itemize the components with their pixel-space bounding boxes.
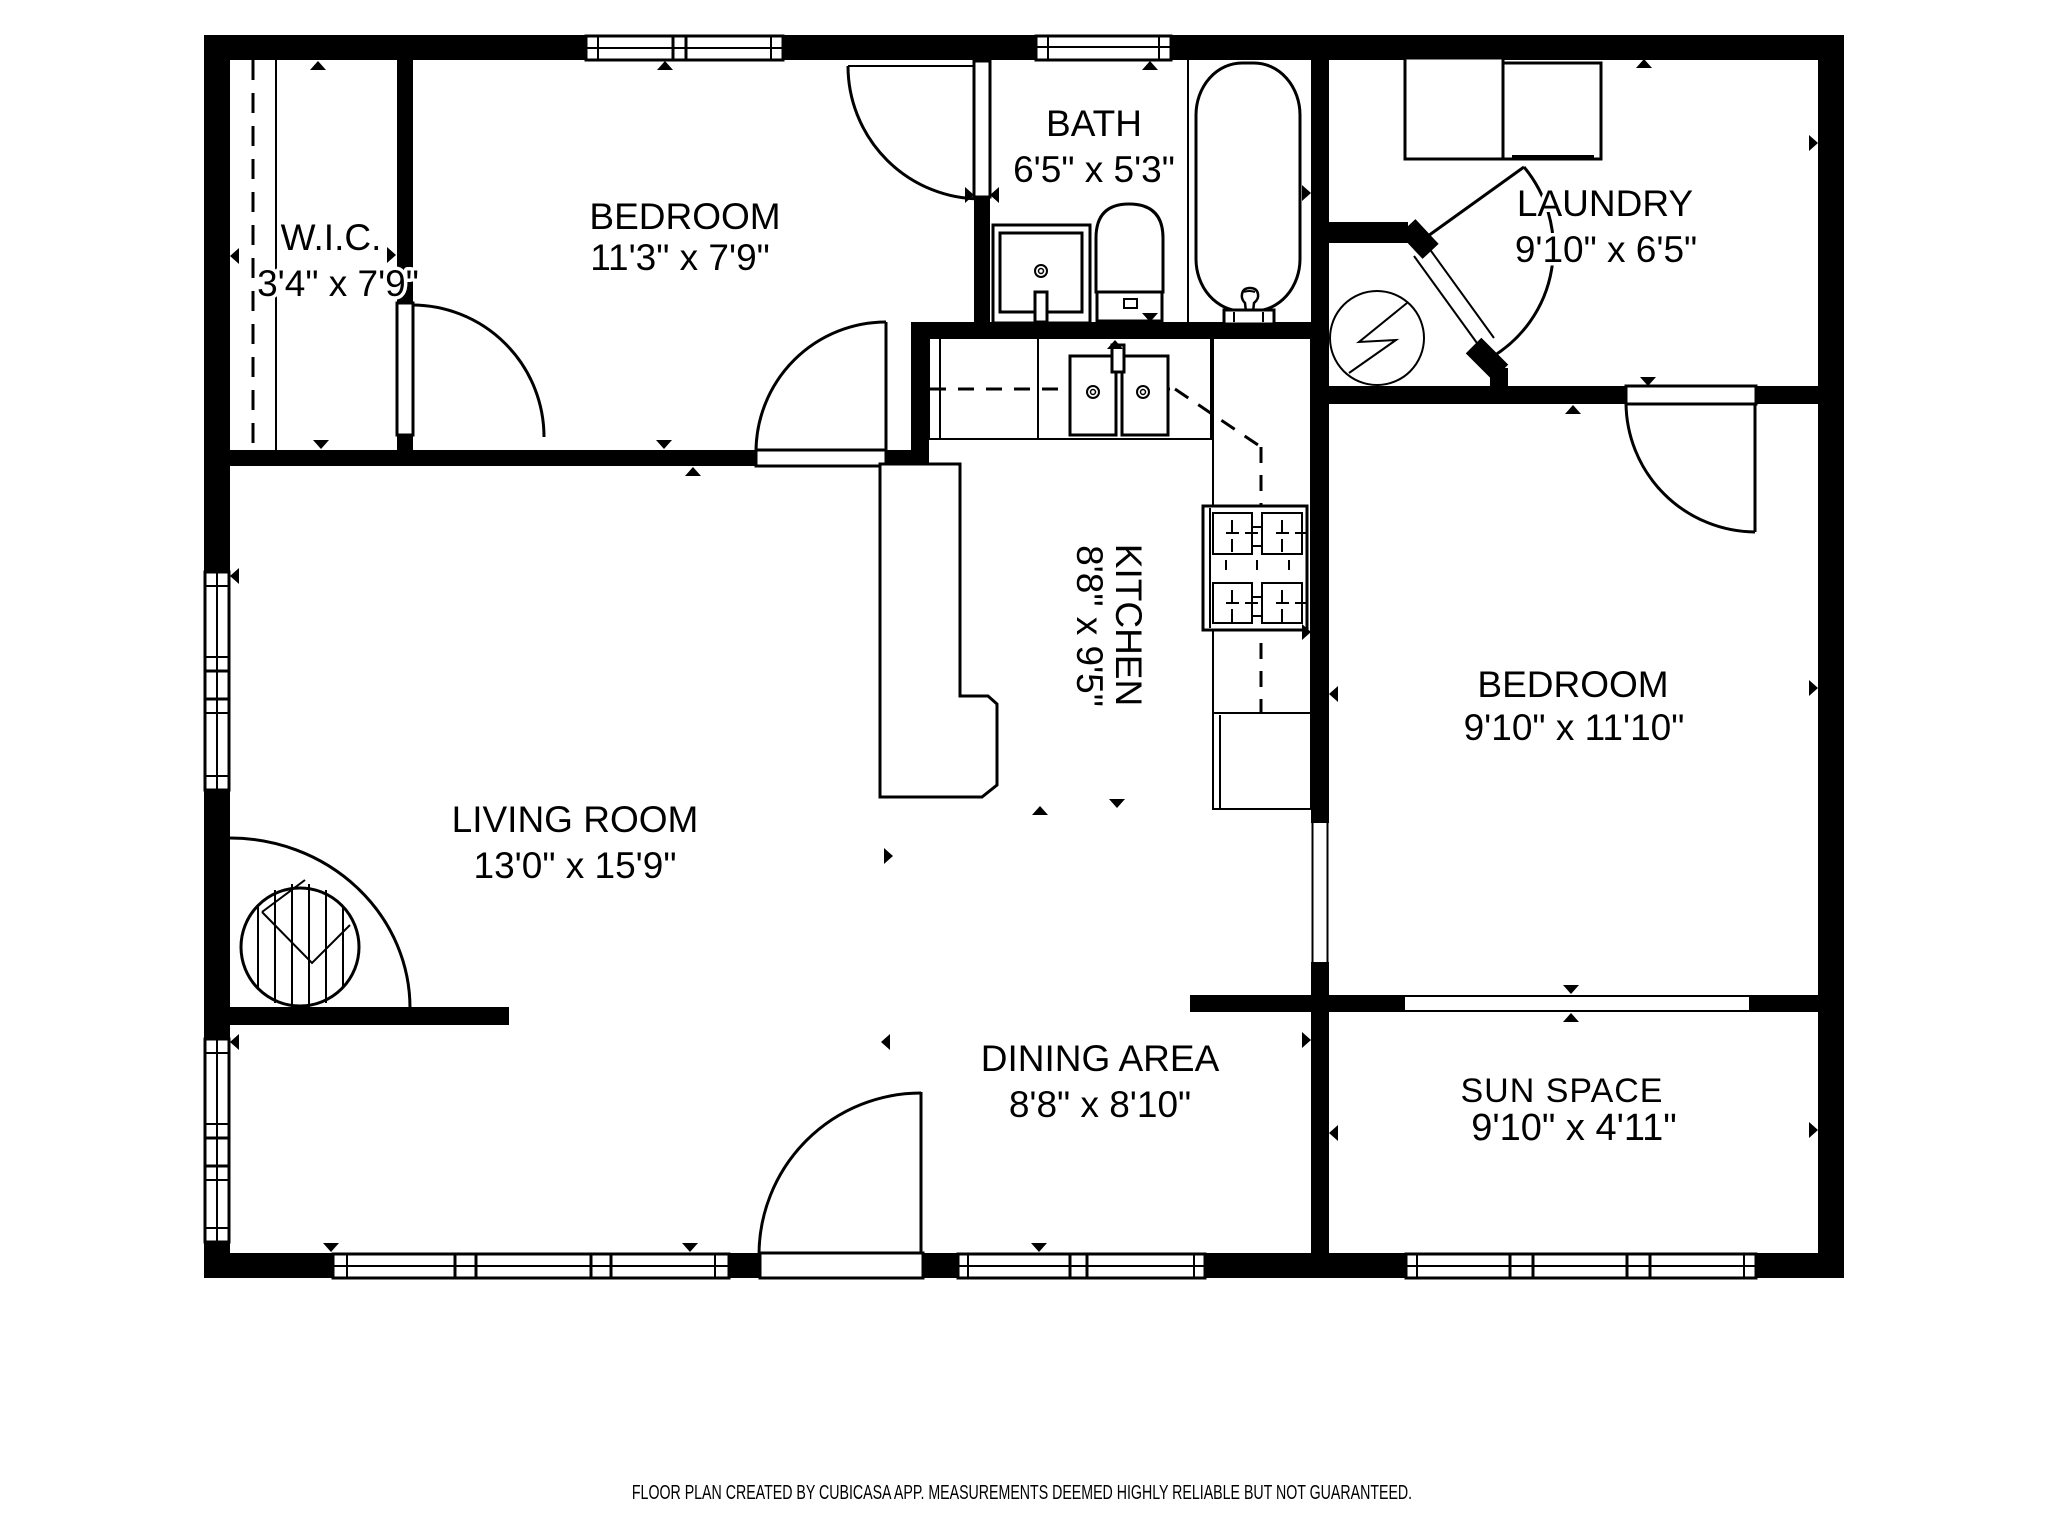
svg-text:KITCHEN: KITCHEN — [1108, 544, 1149, 706]
svg-text:BEDROOM: BEDROOM — [589, 196, 780, 237]
svg-text:9'10" x 6'5": 9'10" x 6'5" — [1515, 229, 1697, 270]
svg-text:LIVING ROOM: LIVING ROOM — [452, 799, 699, 840]
svg-text:11'3" x 7'9": 11'3" x 7'9" — [590, 237, 770, 278]
svg-text:DINING AREA: DINING AREA — [981, 1038, 1220, 1079]
svg-text:LAUNDRY: LAUNDRY — [1517, 183, 1693, 224]
svg-text:6'5" x 5'3": 6'5" x 5'3" — [1013, 149, 1175, 190]
svg-text:13'0" x 15'9": 13'0" x 15'9" — [474, 845, 677, 886]
svg-text:BATH: BATH — [1046, 103, 1142, 144]
svg-text:8'8" x 9'5": 8'8" x 9'5" — [1069, 545, 1110, 707]
svg-text:9'10" x 11'10": 9'10" x 11'10" — [1464, 707, 1685, 748]
svg-text:BEDROOM: BEDROOM — [1477, 664, 1668, 705]
svg-text:SUN SPACE: SUN SPACE — [1461, 1072, 1664, 1110]
svg-text:FLOOR PLAN CREATED BY CUBICASA: FLOOR PLAN CREATED BY CUBICASA APP. MEAS… — [632, 1481, 1412, 1504]
svg-text:3'4" x 7'9": 3'4" x 7'9" — [257, 263, 419, 304]
svg-text:8'8" x 8'10": 8'8" x 8'10" — [1009, 1084, 1191, 1125]
svg-text:W.I.C.: W.I.C. — [281, 217, 382, 258]
svg-text:9'10" x 4'11": 9'10" x 4'11" — [1471, 1107, 1677, 1149]
